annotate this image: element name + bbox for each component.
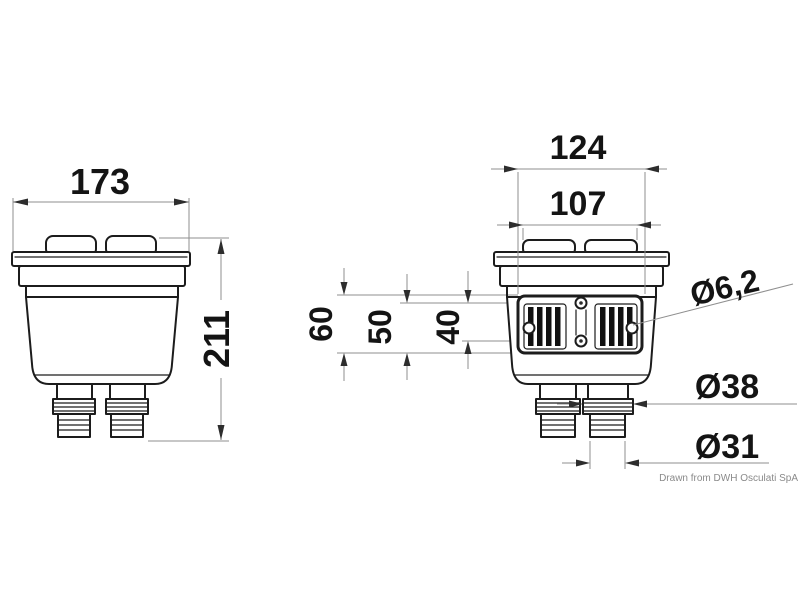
dim-label-173: 173 bbox=[70, 161, 130, 202]
dim-label-107: 107 bbox=[550, 185, 607, 223]
hose-barb-right-side bbox=[583, 384, 633, 437]
strainer-body bbox=[26, 297, 178, 384]
lid-flange bbox=[12, 252, 190, 266]
technical-drawing: 173 211 60 50 bbox=[0, 0, 800, 600]
dim-label-124: 124 bbox=[550, 129, 607, 167]
dim-label-d38: Ø38 bbox=[695, 368, 759, 406]
lid-flange-side bbox=[494, 252, 669, 266]
drawing-credit: Drawn from DWH Osculati SpA bbox=[659, 473, 798, 484]
dim-label-211: 211 bbox=[196, 310, 237, 368]
hose-barb-left bbox=[53, 384, 95, 437]
dim-label-d31: Ø31 bbox=[695, 428, 759, 466]
mount-hole-left bbox=[524, 323, 535, 334]
dim-label-40: 40 bbox=[430, 309, 466, 345]
lid-rim bbox=[19, 266, 185, 286]
dim-label-60: 60 bbox=[303, 306, 339, 342]
dim-label-50: 50 bbox=[362, 309, 398, 345]
hose-barb-right bbox=[106, 384, 148, 437]
lid-rim-side bbox=[500, 266, 663, 286]
mounting-bracket bbox=[518, 296, 642, 353]
hose-barb-left-side bbox=[536, 384, 580, 437]
